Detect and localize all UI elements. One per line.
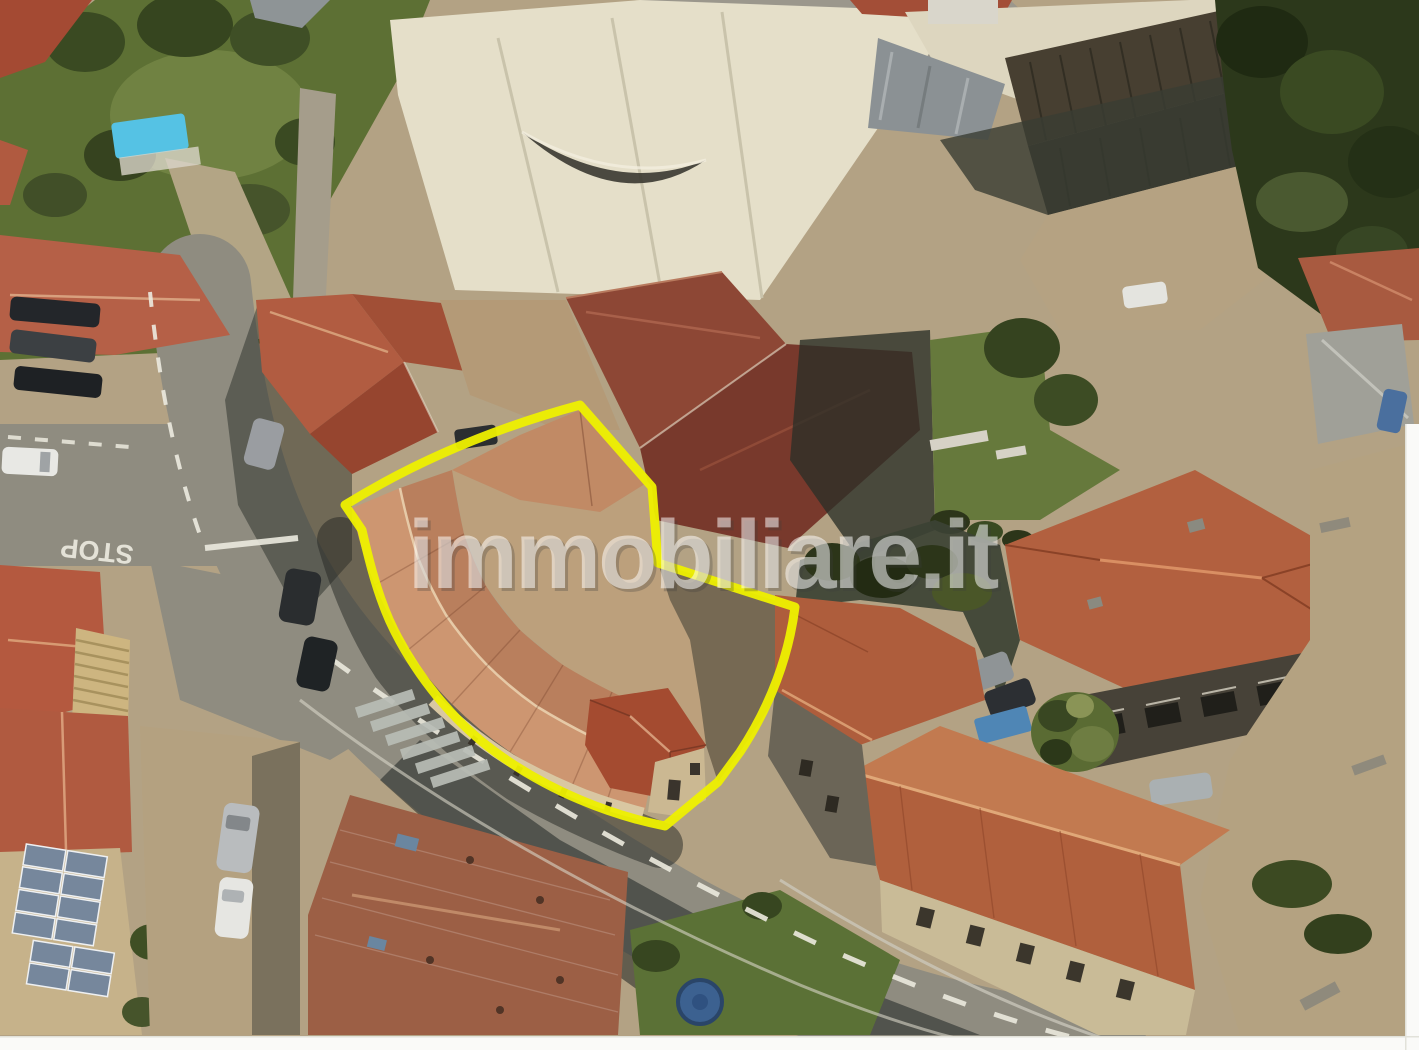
white-margin-bottom — [0, 1036, 1419, 1050]
white-car — [214, 876, 254, 939]
watermark-text: immobiliare.it — [408, 500, 999, 609]
white-margin-right — [1405, 424, 1419, 1050]
court-shadow — [252, 742, 300, 1035]
watermark: immobiliare.it immobiliare.it — [408, 500, 1002, 612]
aerial-photo-3d: STOP immobiliare.it immobiliare.it — [0, 0, 1419, 1050]
white-van — [1, 447, 58, 477]
large-tree-camo — [1031, 692, 1119, 772]
ne-white-box — [928, 0, 998, 24]
